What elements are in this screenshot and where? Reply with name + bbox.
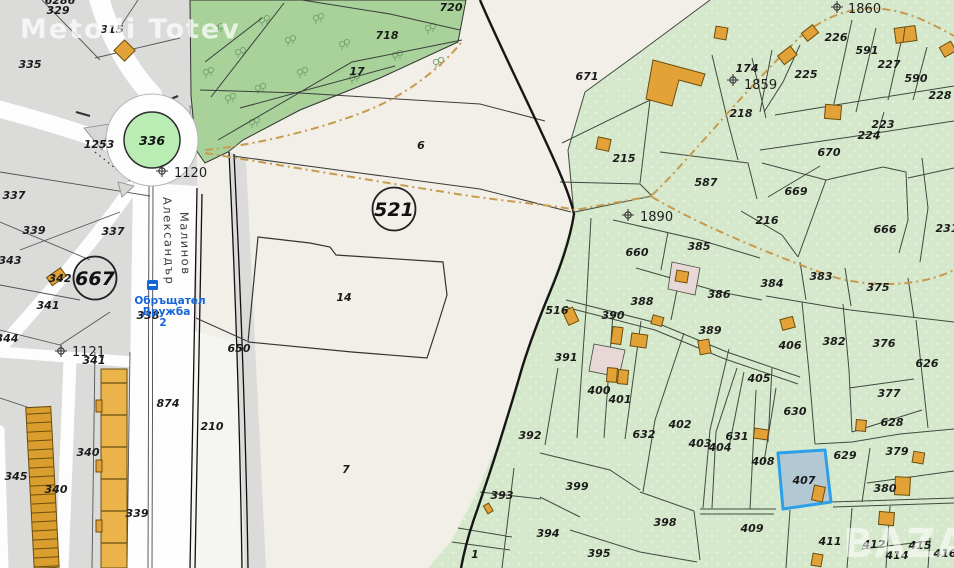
building <box>596 137 611 151</box>
parcel-label-587: 587 <box>695 176 718 189</box>
parcel-label-6: 6 <box>417 139 425 152</box>
parcel-label-218: 218 <box>730 107 753 120</box>
parcel-label-227: 227 <box>878 58 901 71</box>
parcel-label-590: 590 <box>905 72 928 85</box>
building <box>611 326 623 344</box>
parcel-label-391: 391 <box>555 351 578 364</box>
building <box>606 368 617 383</box>
parcel-label-1: 1 <box>471 548 479 561</box>
parcel-label-399: 399 <box>566 480 589 493</box>
building <box>96 400 102 412</box>
parcel-label-398: 398 <box>654 516 677 529</box>
parcel-label-394: 394 <box>537 527 560 540</box>
parcel-label-650: 650 <box>228 342 251 355</box>
parcel-label-339: 339 <box>126 507 149 520</box>
building <box>912 451 925 464</box>
parcel-label-337: 337 <box>102 225 125 238</box>
parcel-label-344: 344 <box>0 332 18 345</box>
survey-point-label-1890: 1890 <box>640 210 673 225</box>
roundabout-label: 336 <box>139 133 165 148</box>
zone-circle-label-521: 521 <box>374 199 414 221</box>
parcel-label-411: 411 <box>818 535 842 548</box>
building <box>824 104 841 119</box>
building <box>811 485 825 502</box>
building <box>855 420 866 432</box>
parcel-label-341: 341 <box>83 354 106 367</box>
road-bottom-vertical <box>62 360 70 568</box>
parcel-label-379: 379 <box>886 445 909 458</box>
building <box>895 477 911 496</box>
survey-point-label-1860: 1860 <box>848 2 881 17</box>
parcel-label-720: 720 <box>440 1 463 14</box>
building <box>698 339 711 355</box>
parcel-label-392: 392 <box>519 429 542 442</box>
parcel-label-874: 874 <box>157 397 180 410</box>
parcel-label-591: 591 <box>856 44 879 57</box>
parcel-label-386: 386 <box>708 288 731 301</box>
parcel-label-671: 671 <box>576 70 599 83</box>
building-terraced-row <box>101 369 127 568</box>
parcel-label-384: 384 <box>761 277 784 290</box>
parcel-label-224: 224 <box>858 129 881 142</box>
survey-point-label-1859: 1859 <box>744 78 777 93</box>
parcel-label-383: 383 <box>810 270 833 283</box>
parcel-label-628: 628 <box>881 416 904 429</box>
parcel-label-216: 216 <box>756 214 779 227</box>
building <box>630 333 648 348</box>
building <box>675 270 689 283</box>
parcel-label-402: 402 <box>668 418 692 431</box>
parcel-label-389: 389 <box>699 324 722 337</box>
parcel-label-225: 225 <box>795 68 818 81</box>
parcel-label-337: 337 <box>3 189 26 202</box>
building <box>811 553 823 567</box>
parcel-label-174: 174 <box>736 62 759 75</box>
survey-point-label-1120: 1120 <box>174 166 207 181</box>
parcel-label-629: 629 <box>834 449 857 462</box>
parcel-label-17: 17 <box>349 65 365 78</box>
parcel-label-516: 516 <box>546 304 569 317</box>
zone-circle-label-667: 667 <box>75 268 115 290</box>
parcel-label-340: 340 <box>45 483 68 496</box>
parcel-label-376: 376 <box>873 337 896 350</box>
building <box>753 428 768 440</box>
parcel-label-228: 228 <box>929 89 952 102</box>
parcel-label-630: 630 <box>784 405 807 418</box>
building <box>714 26 728 40</box>
parcel-label-342: 342 <box>49 272 72 285</box>
parcel-label-631: 631 <box>726 430 749 443</box>
parcel-label-377: 377 <box>878 387 901 400</box>
cadastral-map[interactable]: 336 667521 11201121189018601859 62863293… <box>0 0 954 568</box>
parcel-label-343: 343 <box>0 254 22 267</box>
parcel-label-340: 340 <box>77 446 100 459</box>
parcel-label-409: 409 <box>740 522 764 535</box>
parcel-label-632: 632 <box>633 428 656 441</box>
transit-label-line3: 2 <box>159 317 166 329</box>
parcel-label-341: 341 <box>37 299 60 312</box>
street-name-line2: Малинов <box>177 212 193 276</box>
parcel-label-395: 395 <box>588 547 611 560</box>
parcel-label-669: 669 <box>785 185 808 198</box>
parcel-label-215: 215 <box>613 152 636 165</box>
parcel-label-718: 718 <box>376 29 399 42</box>
parcel-label-231: 231 <box>936 222 954 235</box>
parcel-label-626: 626 <box>916 357 939 370</box>
parcel-label-226: 226 <box>825 31 848 44</box>
building <box>96 460 102 472</box>
watermark-top-left: Metodi Totev <box>20 14 241 45</box>
watermark-bottom-right: BAZAR <box>843 521 954 567</box>
map-canvas[interactable]: 336 667521 11201121189018601859 62863293… <box>0 0 954 568</box>
parcel-label-400: 400 <box>587 384 611 397</box>
parcel-label-660: 660 <box>626 246 649 259</box>
parcel-label-375: 375 <box>867 281 890 294</box>
parcel-label-335: 335 <box>19 58 42 71</box>
parcel-label-408: 408 <box>751 455 775 468</box>
parcel-label-210: 210 <box>201 420 224 433</box>
parcel-label-388: 388 <box>631 295 654 308</box>
parcel-label-345: 345 <box>5 470 28 483</box>
parcel-label-390: 390 <box>602 309 625 322</box>
road-left-edge <box>0 430 4 568</box>
parcel-label-393: 393 <box>491 489 514 502</box>
parcel-label-670: 670 <box>818 146 841 159</box>
parcel-label-666: 666 <box>874 223 897 236</box>
parcel-label-339: 339 <box>23 224 46 237</box>
parcel-label-7: 7 <box>342 463 350 476</box>
parcel-label-1253: 1253 <box>84 138 115 151</box>
building <box>617 370 628 385</box>
parcel-label-405: 405 <box>747 372 771 385</box>
parcel-label-401: 401 <box>608 393 632 406</box>
parcel-label-380: 380 <box>874 482 897 495</box>
parcel-label-407: 407 <box>792 474 816 487</box>
parcel-label-382: 382 <box>823 335 846 348</box>
building <box>894 26 917 44</box>
parcel-label-14: 14 <box>336 291 351 304</box>
parcel-label-406: 406 <box>778 339 802 352</box>
building <box>96 520 102 532</box>
parcel-label-385: 385 <box>688 240 711 253</box>
